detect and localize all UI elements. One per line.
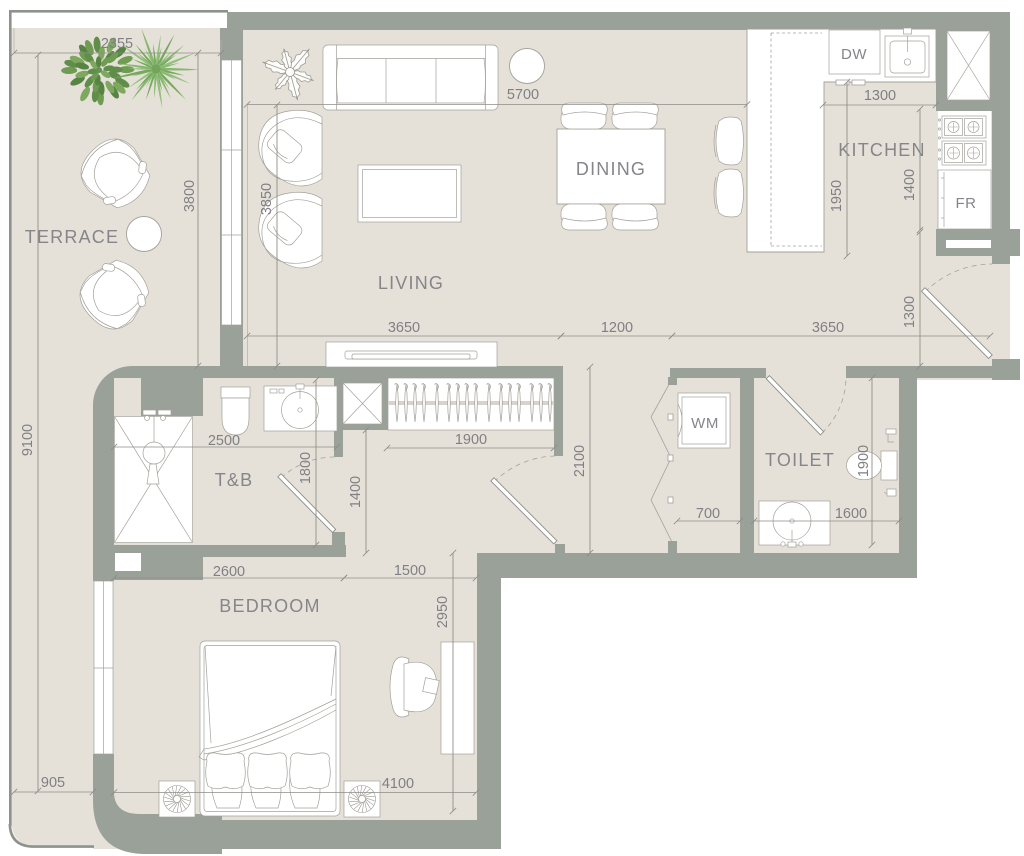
svg-text:1200: 1200	[601, 320, 633, 336]
svg-text:9100: 9100	[20, 424, 36, 456]
svg-text:1950: 1950	[829, 180, 845, 212]
svg-text:BEDROOM: BEDROOM	[219, 596, 320, 616]
svg-text:DW: DW	[841, 46, 867, 63]
svg-text:LIVING: LIVING	[378, 273, 444, 293]
svg-text:KITCHEN: KITCHEN	[838, 140, 925, 160]
svg-text:1900: 1900	[856, 445, 872, 477]
svg-text:1300: 1300	[864, 88, 896, 104]
svg-text:1800: 1800	[298, 452, 314, 484]
svg-text:2950: 2950	[435, 596, 451, 628]
svg-text:3650: 3650	[812, 320, 844, 336]
svg-text:3650: 3650	[388, 320, 420, 336]
svg-text:700: 700	[696, 506, 720, 522]
svg-text:1400: 1400	[348, 476, 364, 508]
svg-text:DINING: DINING	[576, 159, 646, 179]
svg-text:2500: 2500	[208, 433, 240, 449]
svg-text:TOILET: TOILET	[765, 450, 835, 470]
svg-text:1400: 1400	[902, 169, 918, 201]
svg-text:2600: 2600	[213, 564, 245, 580]
svg-text:1300: 1300	[902, 296, 918, 328]
svg-text:5700: 5700	[507, 87, 539, 103]
svg-text:T&B: T&B	[215, 470, 254, 490]
svg-text:WM: WM	[691, 415, 719, 432]
svg-text:4100: 4100	[382, 776, 414, 792]
svg-text:1600: 1600	[835, 506, 867, 522]
svg-text:905: 905	[41, 775, 65, 791]
svg-text:1500: 1500	[394, 563, 426, 579]
svg-text:1900: 1900	[455, 432, 487, 448]
svg-text:FR: FR	[956, 195, 977, 212]
svg-text:3850: 3850	[259, 183, 275, 215]
svg-text:2355: 2355	[101, 36, 133, 52]
svg-text:2100: 2100	[572, 445, 588, 477]
svg-text:3800: 3800	[182, 180, 198, 212]
svg-text:TERRACE: TERRACE	[25, 227, 119, 247]
